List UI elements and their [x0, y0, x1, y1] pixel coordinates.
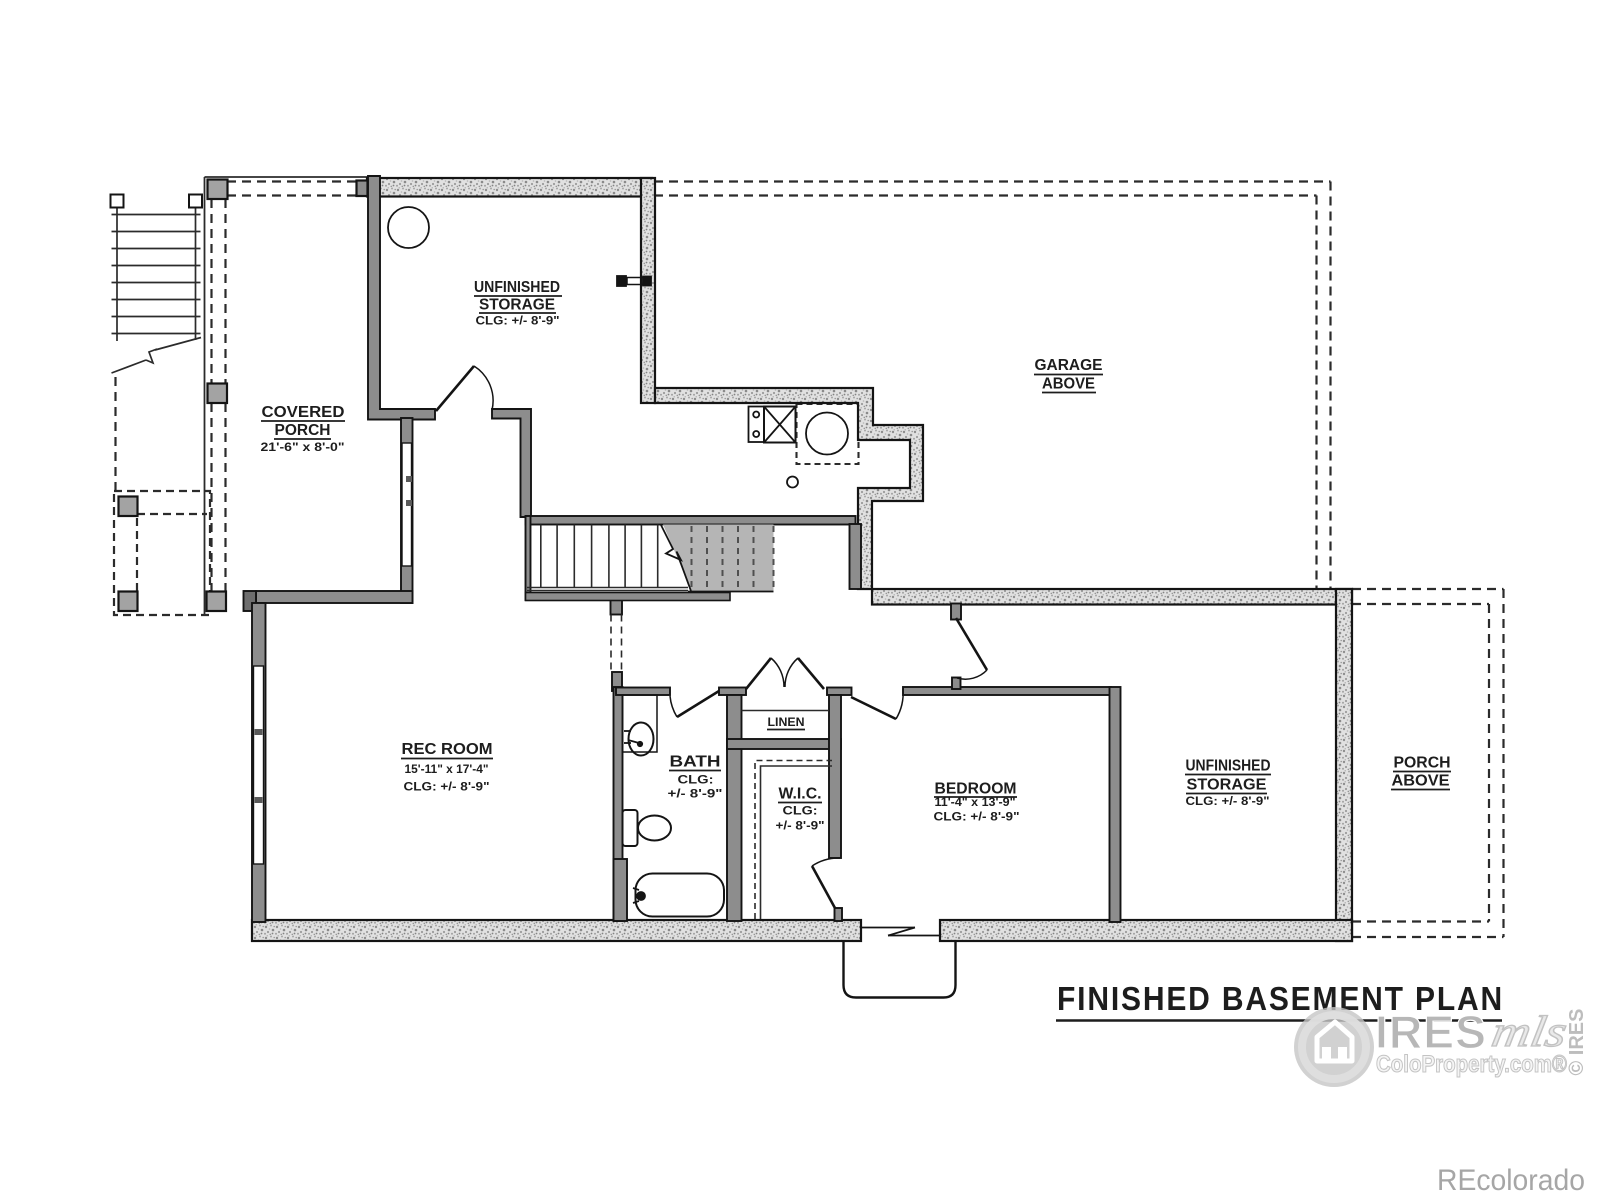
svg-text:GARAGE: GARAGE — [1035, 357, 1103, 374]
svg-text:W.I.C.: W.I.C. — [779, 786, 822, 803]
svg-text:CLG: +/- 8'-9": CLG: +/- 8'-9" — [934, 810, 1020, 824]
svg-text:CLG: +/- 8'-9": CLG: +/- 8'-9" — [404, 780, 490, 794]
svg-text:COVERED: COVERED — [262, 404, 345, 421]
svg-text:STORAGE: STORAGE — [479, 297, 555, 314]
svg-text:CLG: +/- 8'-9": CLG: +/- 8'-9" — [1186, 794, 1270, 808]
svg-text:CLG:: CLG: — [783, 804, 818, 818]
svg-text:STORAGE: STORAGE — [1187, 777, 1267, 794]
svg-text:+/- 8'-9": +/- 8'-9" — [668, 787, 723, 801]
svg-text:REC ROOM: REC ROOM — [402, 741, 493, 758]
svg-text:LINEN: LINEN — [768, 715, 805, 729]
svg-text:BATH: BATH — [670, 754, 721, 771]
svg-text:© IRES: © IRES — [1566, 1009, 1588, 1076]
svg-text:CLG:: CLG: — [678, 773, 714, 787]
svg-text:mls: mls — [1488, 1006, 1571, 1056]
svg-text:PORCH: PORCH — [1394, 755, 1451, 772]
svg-text:PORCH: PORCH — [275, 422, 331, 439]
svg-text:15'-11" x 17'-4": 15'-11" x 17'-4" — [405, 762, 489, 776]
svg-text:21'-6" x 8'-0": 21'-6" x 8'-0" — [261, 440, 345, 454]
svg-text:UNFINISHED: UNFINISHED — [474, 279, 560, 296]
svg-text:UNFINISHED: UNFINISHED — [1186, 758, 1271, 775]
svg-text:ABOVE: ABOVE — [1042, 376, 1095, 393]
svg-text:ColoProperty.com®: ColoProperty.com® — [1376, 1051, 1567, 1078]
svg-text:ABOVE: ABOVE — [1392, 773, 1450, 790]
svg-text:+/- 8'-9": +/- 8'-9" — [776, 819, 825, 833]
svg-text:CLG: +/- 8'-9": CLG: +/- 8'-9" — [476, 314, 560, 328]
svg-text:REcolorado: REcolorado — [1437, 1164, 1585, 1197]
